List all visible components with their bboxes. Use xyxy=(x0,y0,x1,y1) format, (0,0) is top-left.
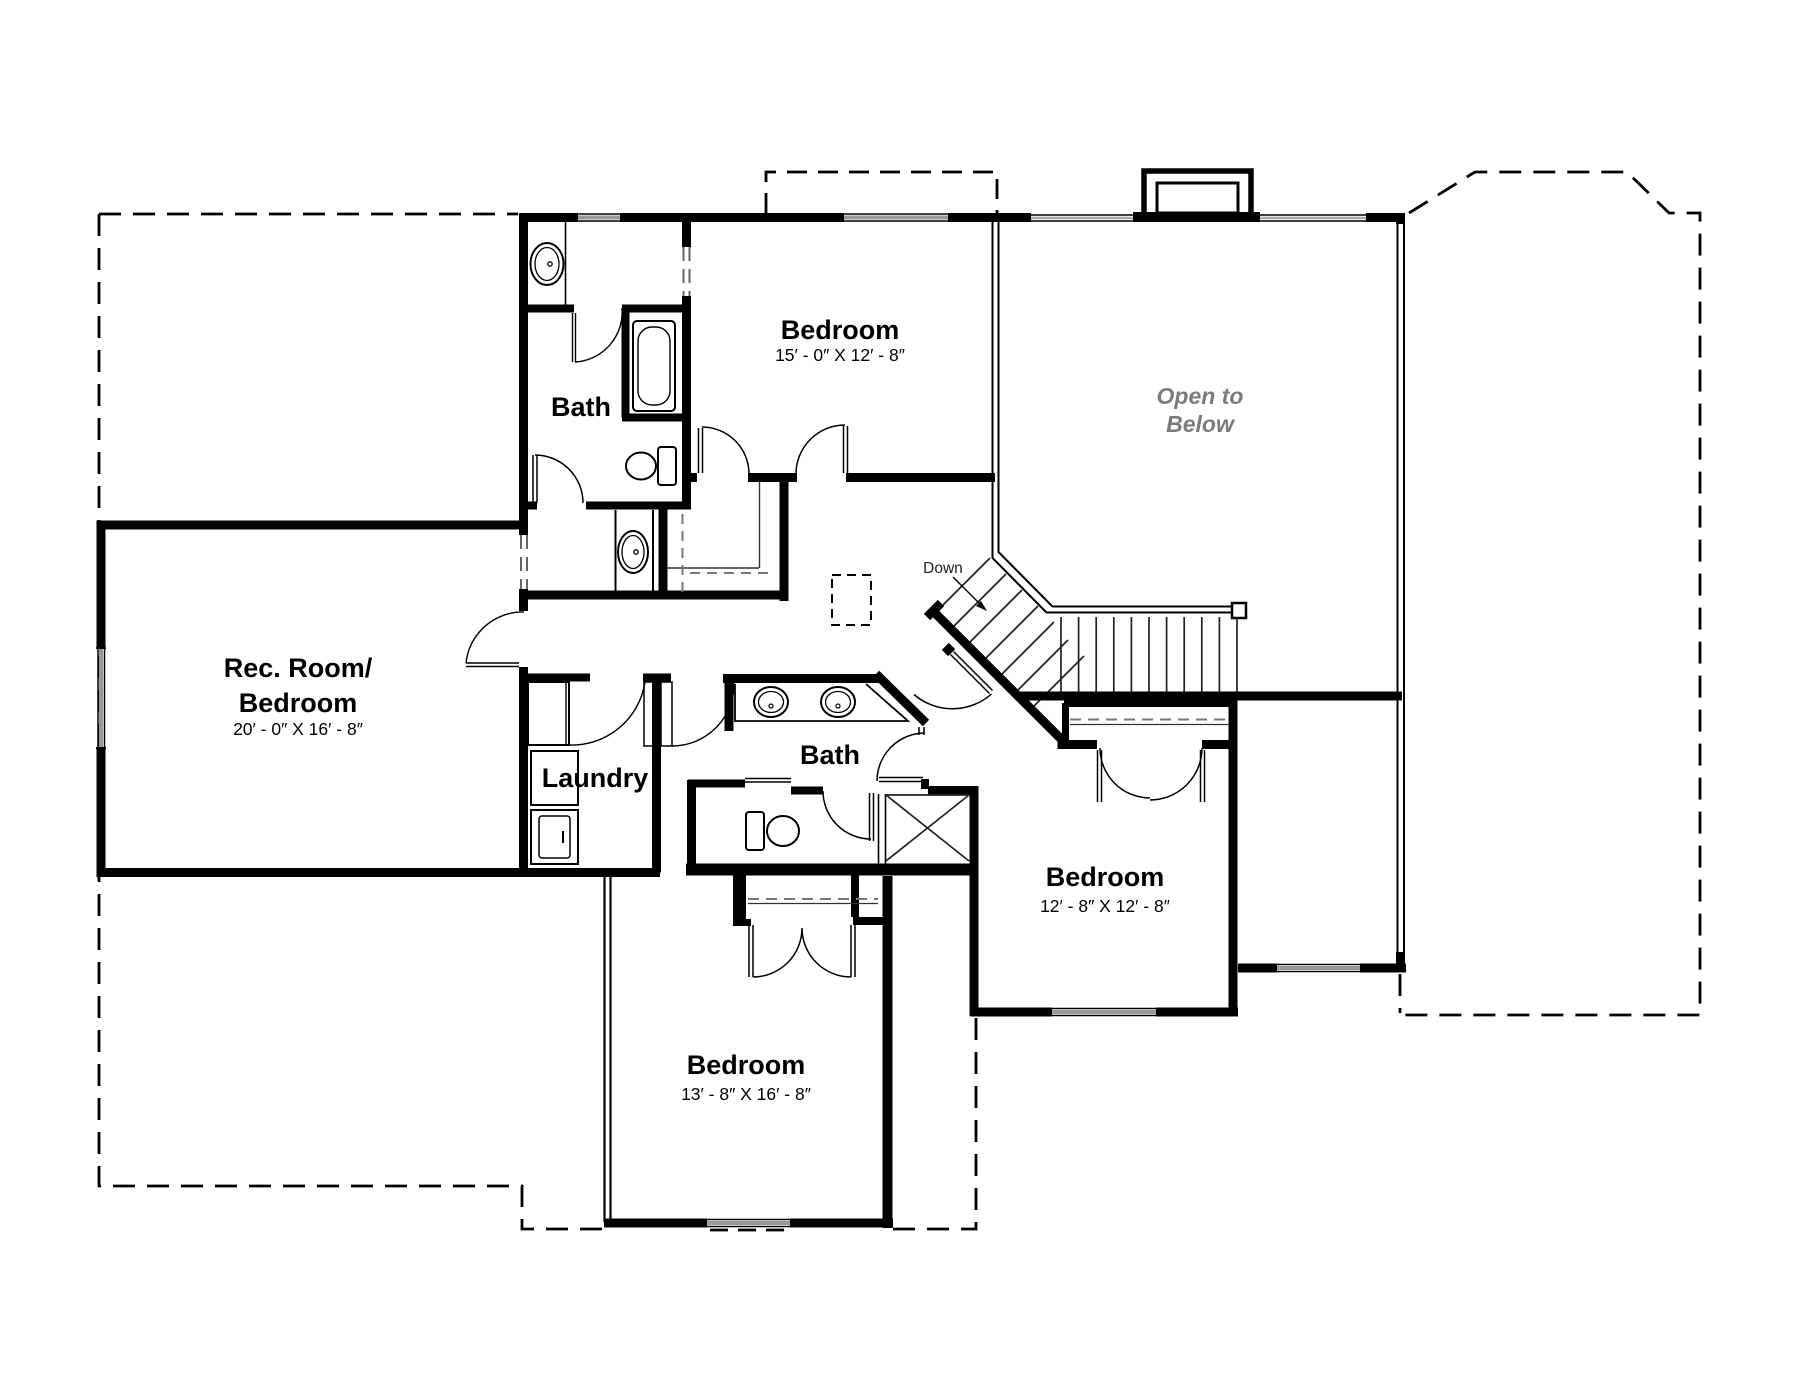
svg-text:Rec. Room/: Rec. Room/ xyxy=(224,653,373,683)
svg-text:Bath: Bath xyxy=(800,740,860,770)
svg-text:Laundry: Laundry xyxy=(542,763,649,793)
svg-text:Open to: Open to xyxy=(1157,383,1244,409)
svg-text:Down: Down xyxy=(923,560,963,577)
svg-text:Bedroom: Bedroom xyxy=(239,688,358,718)
svg-text:13′ - 8″ X 16′ - 8″: 13′ - 8″ X 16′ - 8″ xyxy=(681,1084,811,1104)
svg-text:15′ - 0″ X 12′ - 8″: 15′ - 0″ X 12′ - 8″ xyxy=(775,345,905,365)
svg-text:Bedroom: Bedroom xyxy=(781,315,900,345)
svg-text:Bedroom: Bedroom xyxy=(1046,862,1165,892)
svg-text:Bedroom: Bedroom xyxy=(687,1050,806,1080)
svg-text:12′ - 8″ X 12′ - 8″: 12′ - 8″ X 12′ - 8″ xyxy=(1040,896,1170,916)
svg-text:Below: Below xyxy=(1166,411,1236,437)
svg-text:20′ - 0″ X 16′ - 8″: 20′ - 0″ X 16′ - 8″ xyxy=(233,719,363,739)
svg-text:Bath: Bath xyxy=(551,392,611,422)
